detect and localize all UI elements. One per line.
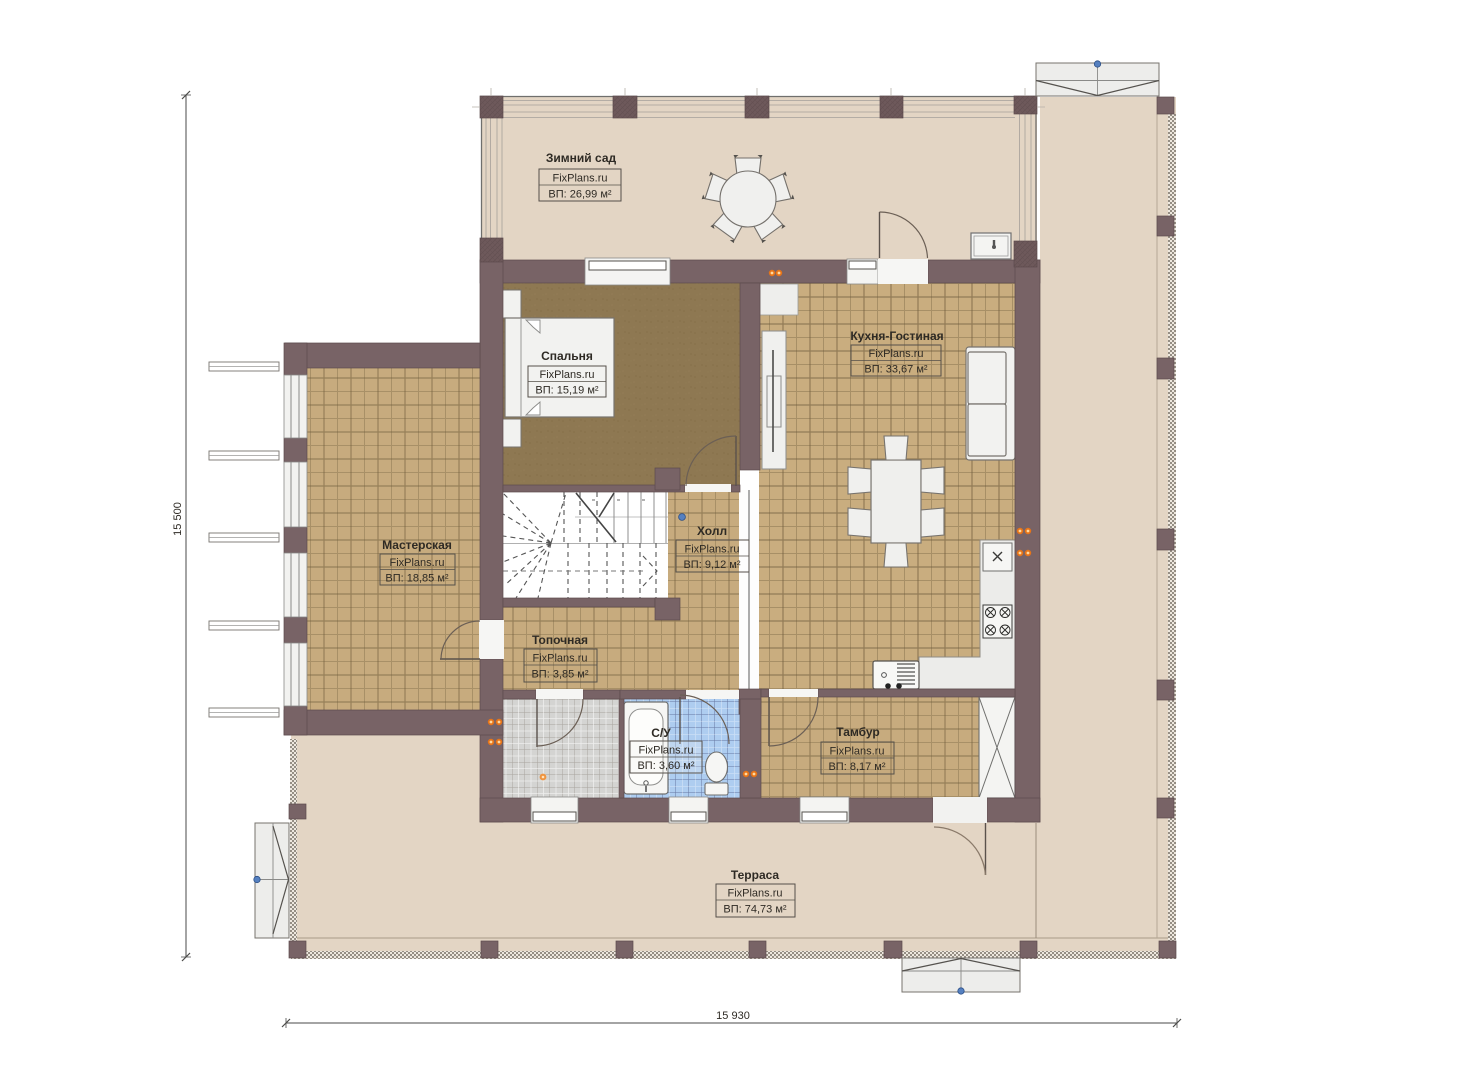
- svg-text:ВП: 15,19 м²: ВП: 15,19 м²: [535, 385, 599, 397]
- svg-text:Терраса: Терраса: [731, 868, 780, 882]
- svg-text:ВП: 3,60 м²: ВП: 3,60 м²: [637, 760, 694, 772]
- svg-text:ВП: 8,17 м²: ВП: 8,17 м²: [828, 761, 885, 773]
- svg-text:FixPlans.ru: FixPlans.ru: [638, 745, 693, 757]
- svg-text:FixPlans.ru: FixPlans.ru: [389, 557, 444, 569]
- svg-text:FixPlans.ru: FixPlans.ru: [684, 544, 739, 556]
- svg-text:ВП: 3,85 м²: ВП: 3,85 м²: [531, 669, 588, 681]
- svg-text:FixPlans.ru: FixPlans.ru: [552, 173, 607, 185]
- svg-text:Тамбур: Тамбур: [836, 725, 880, 739]
- svg-text:ВП: 9,12 м²: ВП: 9,12 м²: [683, 559, 740, 571]
- svg-text:Мастерская: Мастерская: [382, 538, 452, 552]
- svg-text:Зимний сад: Зимний сад: [546, 151, 617, 165]
- svg-text:Кухня-Гостиная: Кухня-Гостиная: [850, 329, 943, 343]
- svg-text:FixPlans.ru: FixPlans.ru: [829, 746, 884, 758]
- svg-text:ВП: 26,99 м²: ВП: 26,99 м²: [548, 189, 612, 201]
- svg-text:FixPlans.ru: FixPlans.ru: [727, 888, 782, 900]
- svg-text:ВП: 33,67 м²: ВП: 33,67 м²: [864, 364, 928, 376]
- svg-text:Спальня: Спальня: [541, 349, 593, 363]
- svg-text:Холл: Холл: [697, 524, 727, 538]
- svg-text:FixPlans.ru: FixPlans.ru: [868, 348, 923, 360]
- svg-text:FixPlans.ru: FixPlans.ru: [532, 653, 587, 665]
- svg-text:FixPlans.ru: FixPlans.ru: [539, 369, 594, 381]
- svg-text:15 930: 15 930: [716, 1010, 750, 1022]
- svg-text:С/У: С/У: [651, 726, 671, 740]
- svg-text:Топочная: Топочная: [532, 633, 588, 647]
- svg-text:15 500: 15 500: [172, 502, 184, 536]
- svg-text:ВП: 18,85 м²: ВП: 18,85 м²: [385, 573, 449, 585]
- svg-text:ВП: 74,73 м²: ВП: 74,73 м²: [723, 904, 787, 916]
